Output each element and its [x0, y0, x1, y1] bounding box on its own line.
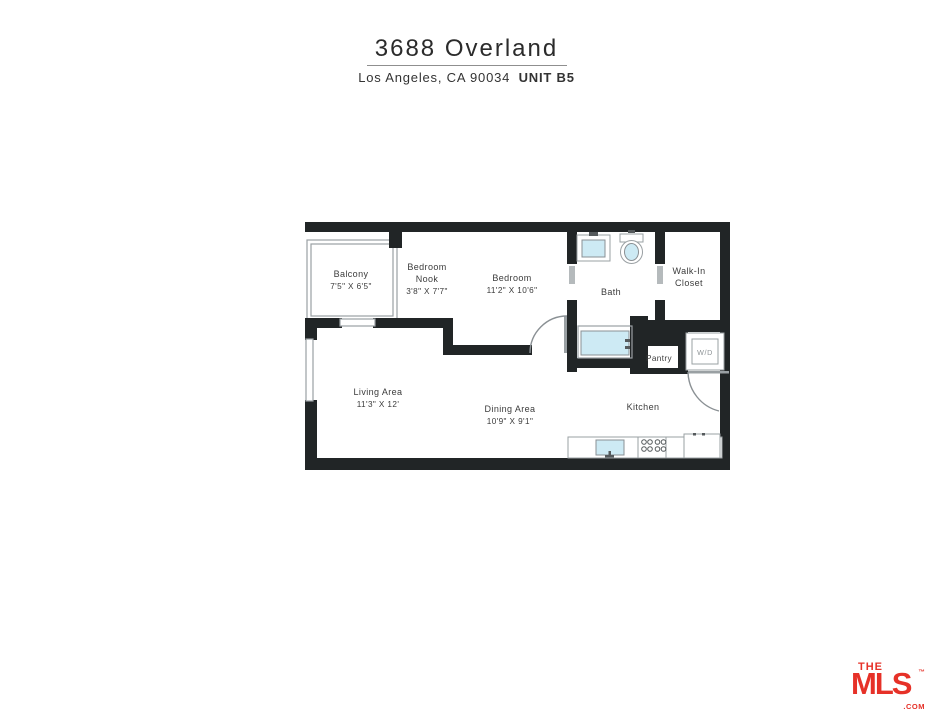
- kitchen-door-leaf: [688, 371, 729, 374]
- closet-door-jamb: [657, 266, 663, 284]
- mls-logo-text: MLS: [851, 668, 910, 699]
- label-dining: Dining Area: [485, 404, 536, 414]
- label-living: Living Area: [354, 387, 403, 397]
- wall-closet-bottom: [648, 320, 730, 332]
- fridge-handle2-icon: [702, 433, 705, 436]
- refrigerator: [684, 434, 720, 458]
- label-bath: Bath: [601, 287, 621, 297]
- mls-logo-trademark: ™: [919, 669, 926, 676]
- fridge-handle-icon: [693, 433, 696, 436]
- label-living-dims: 11'3" X 12': [357, 400, 400, 409]
- bathtub: [581, 331, 629, 355]
- label-balcony-dims: 7'5" X 6'5": [330, 282, 372, 291]
- label-pantry: Pantry: [646, 354, 673, 363]
- label-nook-dims: 3'8" X 7'7": [406, 287, 448, 296]
- toilet-valve-icon: [628, 230, 635, 233]
- wall-dining-top: [443, 345, 532, 355]
- wall-pantry-left: [630, 316, 648, 374]
- kitchen-faucet-stem-icon: [609, 451, 612, 455]
- bath-sink: [582, 240, 605, 257]
- living-window: [306, 339, 313, 401]
- floorplan-page: 3688 Overland Los Angeles, CA 90034 UNIT…: [0, 0, 933, 720]
- bedroom-door-leaf: [564, 316, 567, 353]
- wall-pantry-top: [648, 332, 678, 346]
- wall-balcony-bottom-left: [305, 318, 342, 328]
- tub-faucet-icon: [625, 339, 630, 342]
- kitchen-faucet-icon: [605, 455, 614, 458]
- bedroom-door-arc: [530, 316, 567, 353]
- label-closet-1: Walk-In: [673, 266, 706, 276]
- label-kitchen: Kitchen: [627, 402, 660, 412]
- wall-closet-left-upper: [655, 232, 665, 264]
- wall-bath-left-upper: [567, 232, 577, 264]
- label-balcony: Balcony: [334, 269, 369, 279]
- mls-logo: THE MLS ™ .COM: [851, 660, 925, 714]
- tub-drain-icon: [625, 346, 630, 349]
- toilet-bowl-inner: [625, 244, 639, 261]
- label-washer-dryer: W/D: [697, 348, 713, 357]
- bath-door-jamb: [569, 266, 575, 284]
- wall-bottom: [305, 458, 730, 470]
- wall-top: [305, 222, 730, 232]
- windows: [307, 240, 397, 320]
- mls-logo-com: .COM: [903, 702, 925, 711]
- label-nook-2: Nook: [416, 274, 439, 284]
- label-closet-2: Closet: [675, 278, 703, 288]
- floorplan-drawing: Balcony 7'5" X 6'5" Bedroom Nook 3'8" X …: [0, 0, 933, 720]
- label-bedroom-dims: 11'2" X 10'6": [487, 286, 538, 295]
- wall-tub-bottom: [567, 358, 637, 368]
- wall-balcony-bottom-right: [373, 318, 453, 328]
- bath-sink-faucet-icon: [589, 232, 598, 236]
- balcony-window-outer: [307, 240, 397, 320]
- label-nook-1: Bedroom: [407, 262, 446, 272]
- wall-pantry-bottom: [630, 368, 688, 374]
- balcony-slider-window: [340, 319, 375, 326]
- wall-left-lower: [305, 400, 317, 470]
- kitchen-door-arc: [688, 372, 719, 411]
- wall-balcony-post: [389, 232, 402, 248]
- balcony-window-inner: [311, 244, 393, 316]
- walls: [305, 222, 730, 470]
- label-bedroom: Bedroom: [492, 273, 531, 283]
- label-dining-dims: 10'9" X 9'1": [487, 417, 534, 426]
